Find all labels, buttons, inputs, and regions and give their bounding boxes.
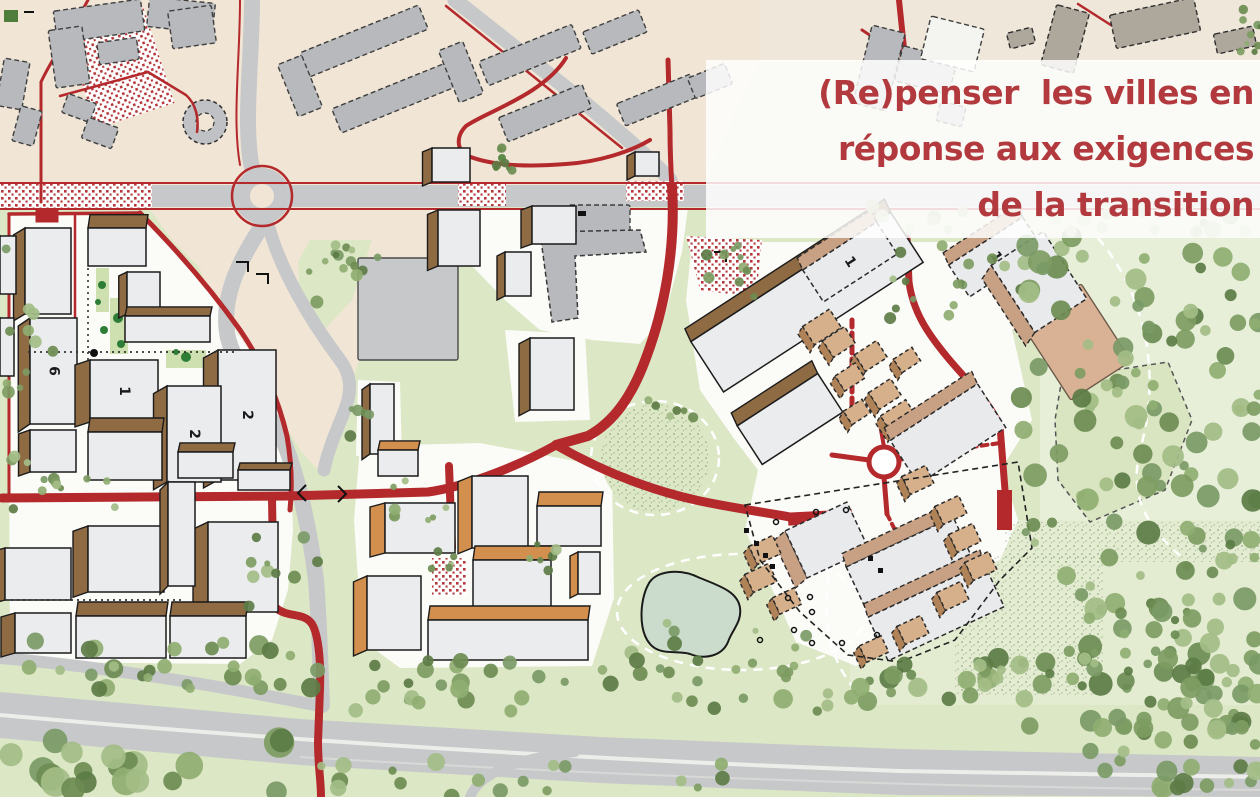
title-panel: (Re)penser les villes en réponse aux exi… [706,60,1260,238]
masterplan-map: 612211 (Re)penser les villes en réponse … [0,0,1260,797]
title-line-3: de la transition [977,177,1254,233]
title-line-1: (Re)penser les villes en [818,65,1254,121]
svg-text:2: 2 [186,429,202,439]
svg-text:1: 1 [116,386,132,396]
svg-text:2: 2 [239,410,255,420]
svg-text:6: 6 [46,366,62,376]
title-line-2: réponse aux exigences [838,121,1254,177]
